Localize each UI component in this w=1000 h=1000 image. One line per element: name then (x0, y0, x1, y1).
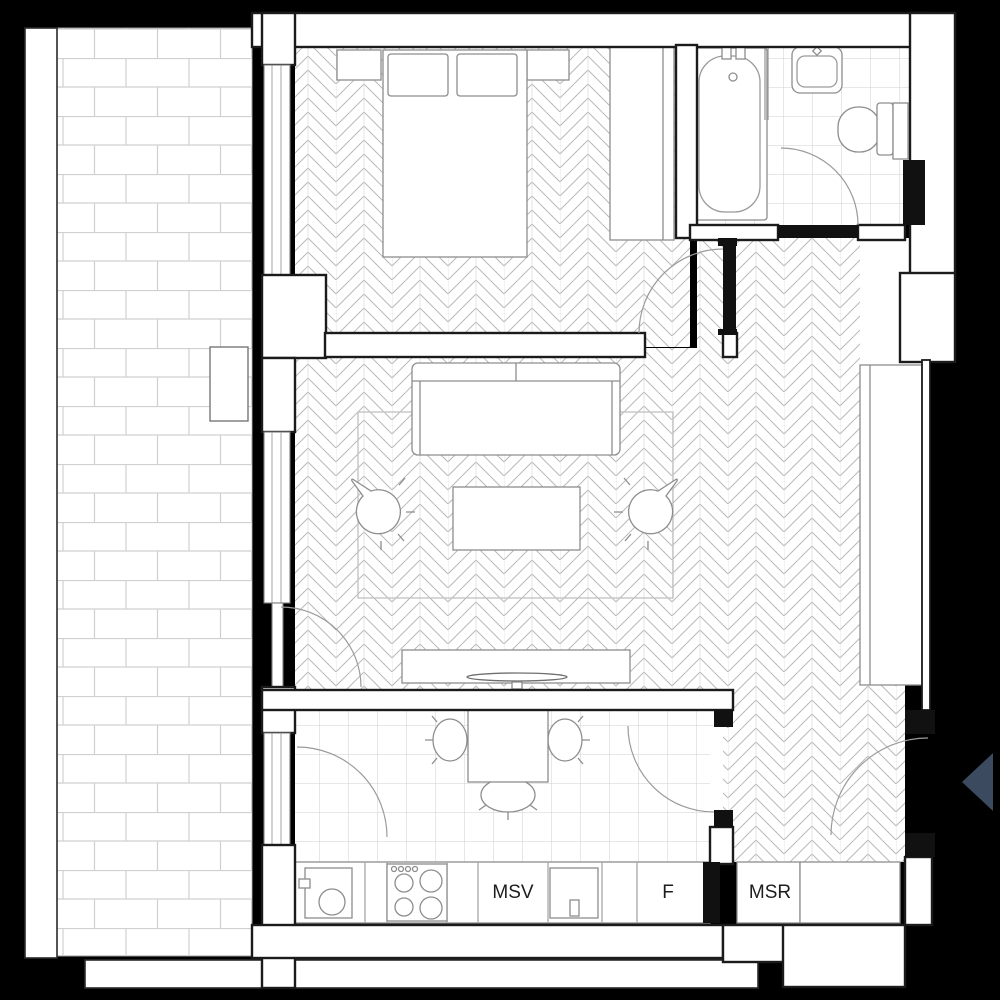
dining-chair-right (548, 719, 582, 761)
tv-living-room (467, 673, 567, 681)
label-msr: MSR (749, 882, 791, 903)
stove-burner (420, 870, 442, 892)
stove-burner (395, 874, 413, 892)
wall-pier-mid (262, 358, 295, 432)
wall-bedroom-living (325, 333, 645, 357)
wall-right-niche (900, 273, 955, 362)
wall-bedroom-hall (676, 45, 697, 238)
coffee-table (453, 487, 580, 550)
wall-bottom-exterior (252, 925, 723, 958)
label-f: F (662, 882, 674, 903)
balcony-bottom-edge (85, 960, 758, 988)
bathroom-door-leaf (778, 225, 858, 238)
hall-cabinet-plain (800, 862, 900, 923)
bathroom-side-cabinet (893, 103, 908, 159)
wall-kitchen-hall-lower (710, 827, 733, 864)
balcony-brick-paving (57, 28, 252, 956)
bedroom-door-leaf (723, 245, 736, 333)
floor-plan-canvas: MSV F MSR (0, 0, 1000, 1000)
bedroom-wardrobe (610, 47, 674, 240)
wall-bottom-right-step (783, 925, 905, 987)
dining-chair-bottom (481, 778, 535, 812)
tv-living-room-stand (512, 682, 522, 689)
pillow-right (457, 54, 517, 96)
wall-pier-top (262, 13, 295, 65)
pillow-left (388, 54, 448, 96)
dining-chair-left (433, 719, 467, 761)
hallway-upper-parquet (697, 238, 860, 365)
stove-knob (399, 867, 404, 872)
floor-plan-drawing: MSV F MSR (0, 0, 1000, 1000)
entrance-parquet (860, 685, 905, 862)
bedroom-furniture (337, 47, 674, 257)
hallway-lower-parquet (723, 365, 860, 862)
kitchen-doorway-floor (710, 727, 723, 810)
bedroom-door-jamb-top (718, 238, 737, 246)
wall-bathroom-bottom-left (690, 225, 778, 240)
window-living-room (264, 432, 290, 603)
stove-knob (392, 867, 397, 872)
wall-right-below-entrance (905, 857, 932, 925)
wall-pier-bottom (262, 845, 295, 988)
wall-pier-large (262, 275, 326, 358)
hall-wardrobe (860, 365, 922, 685)
bathroom-poche-column (903, 160, 925, 225)
nightstand-left (337, 50, 381, 80)
kitchen-door-jamb-bottom (714, 810, 733, 827)
window-bedroom (264, 65, 290, 275)
wall-bedroom-living-stub (723, 333, 737, 357)
bathtub-drain (729, 73, 737, 81)
wall-right-upper (910, 13, 955, 275)
dining-table (468, 708, 548, 782)
label-msv: MSV (492, 882, 534, 903)
entrance-door-jamb-bottom (905, 833, 935, 857)
kitchen-sink-bowl (319, 889, 345, 915)
balcony-door-living-leaf (272, 603, 283, 687)
balcony-unit-box (210, 347, 248, 421)
wall-top-exterior (252, 13, 928, 47)
entrance-door-jamb-top (905, 710, 935, 734)
bathroom-sink-basin (797, 56, 837, 87)
kitchen-counter-end-poche (703, 862, 720, 923)
wall-right-outer (922, 360, 930, 710)
kitchen-door-jamb-top (714, 710, 733, 727)
toilet-bowl (838, 107, 880, 152)
stove-knob (413, 867, 418, 872)
kitchen-sink-faucet (299, 879, 310, 888)
dishwasher-slot (570, 900, 579, 916)
nightstand-right (527, 50, 569, 80)
wall-bathroom-bottom-right (858, 225, 905, 240)
stove-burner (395, 898, 413, 916)
stove-knob (406, 867, 411, 872)
stove-burner (420, 897, 442, 919)
balcony-railing (25, 28, 57, 958)
window-kitchen (264, 733, 290, 845)
toilet-cistern (877, 103, 893, 155)
wall-living-kitchen (262, 690, 733, 710)
